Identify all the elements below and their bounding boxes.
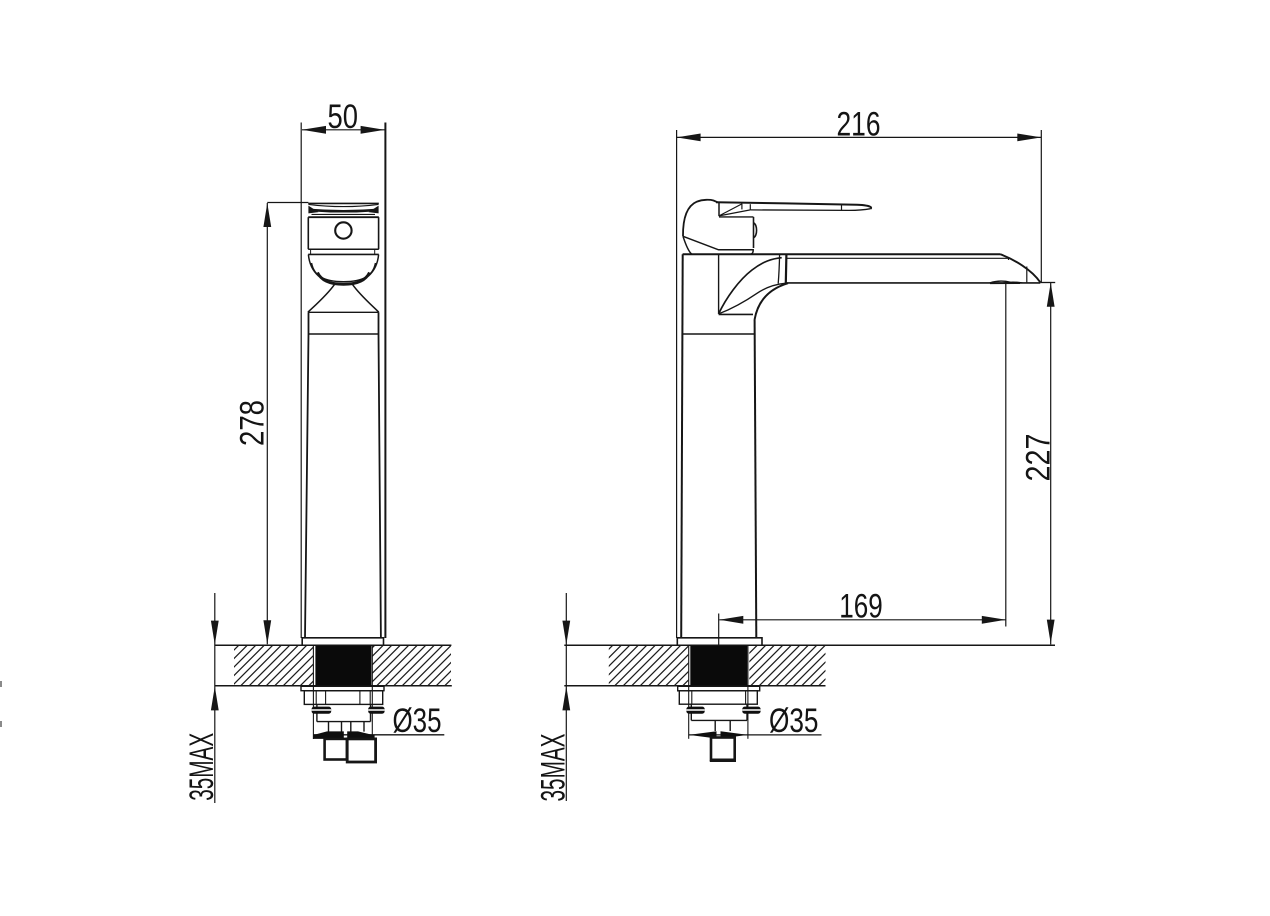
svg-text:216: 216 bbox=[837, 105, 881, 143]
svg-text:227: 227 bbox=[1020, 434, 1058, 482]
svg-text:278: 278 bbox=[234, 400, 272, 446]
svg-text:Ø35: Ø35 bbox=[769, 702, 819, 740]
svg-text:50: 50 bbox=[328, 98, 359, 136]
svg-text:Ø35: Ø35 bbox=[393, 702, 442, 740]
svg-text:169: 169 bbox=[839, 587, 883, 625]
svg-text:35MAX: 35MAX bbox=[535, 734, 573, 802]
svg-text:35MAX: 35MAX bbox=[183, 733, 221, 801]
